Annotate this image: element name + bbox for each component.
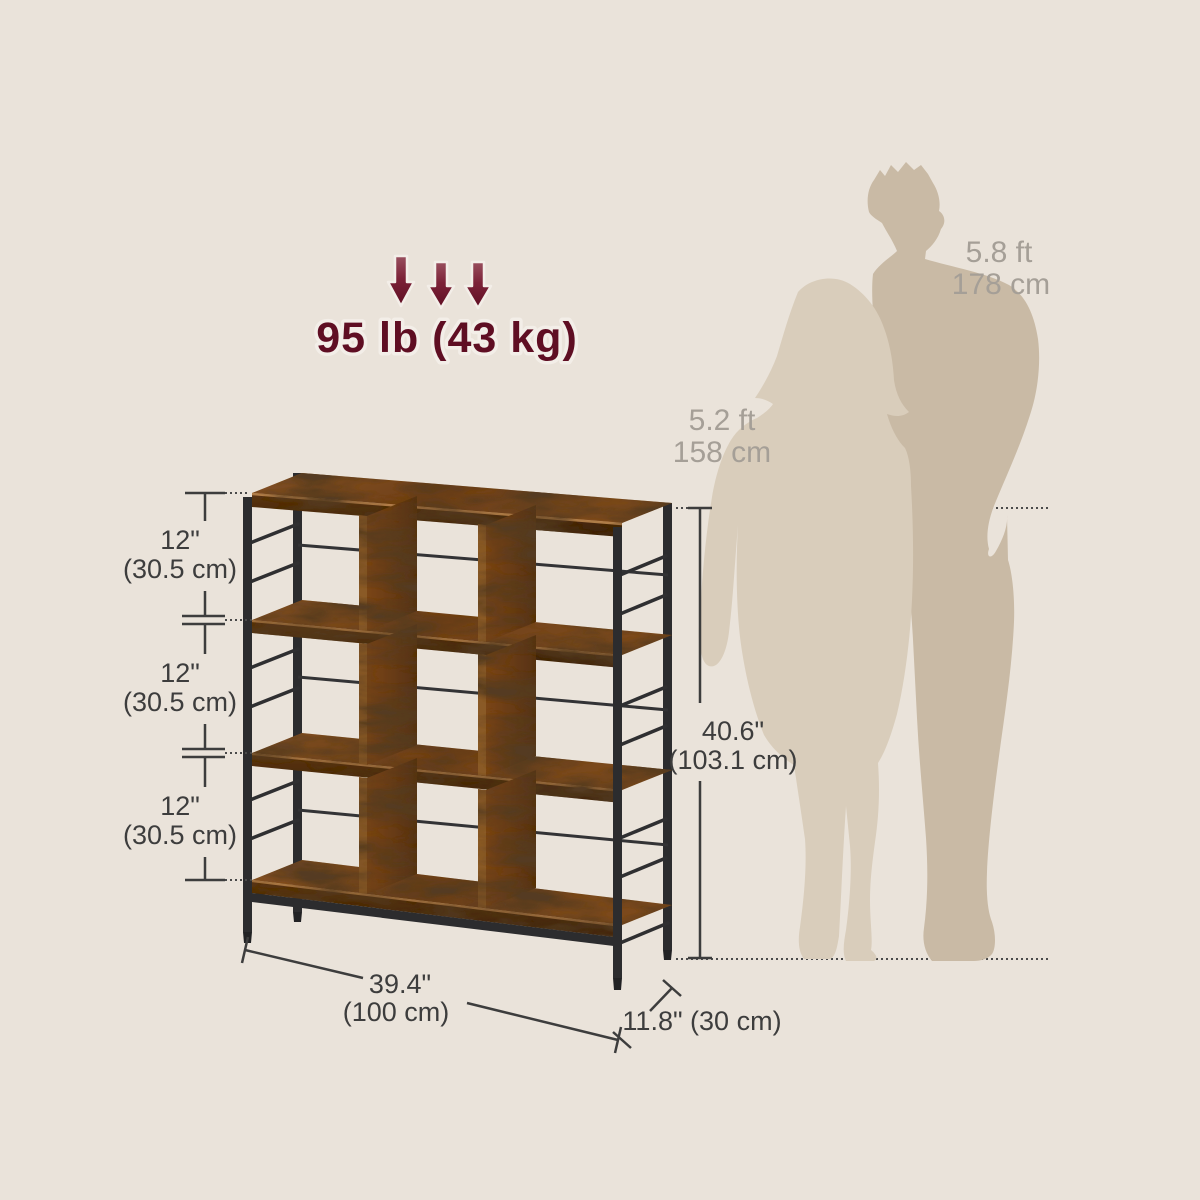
male-height-ft: 5.8 ft: [966, 236, 1033, 269]
shelf-divider-face: [367, 496, 417, 631]
metal-frame-foot: [293, 912, 302, 922]
shelf-divider-edge: [359, 643, 367, 765]
background: [0, 0, 1200, 1200]
width-cm: (100 cm): [343, 997, 450, 1027]
height-cm: (103.1 cm): [668, 745, 797, 775]
shelf-divider-edge: [478, 524, 486, 642]
shelf-divider-face: [367, 758, 417, 894]
shelf-divider-edge: [359, 777, 367, 894]
female-height-ft: 5.2 ft: [689, 404, 756, 437]
product-diagram-canvas: 5.8 ft 178 cm 5.2 ft 158 cm: [0, 0, 1200, 1200]
shelf-divider-edge: [478, 789, 486, 908]
metal-frame-post-front-left: [243, 497, 252, 932]
tier2-inches: 12": [160, 658, 200, 688]
metal-frame-post-front-right: [613, 527, 622, 978]
tier1-cm: (30.5 cm): [123, 554, 237, 584]
diagram-svg: 5.8 ft 178 cm 5.2 ft 158 cm: [0, 0, 1200, 1200]
shelf-divider-face: [486, 635, 536, 776]
male-height-cm: 178 cm: [952, 268, 1050, 301]
width-inches: 39.4": [369, 969, 431, 999]
shelf-divider-edge: [359, 515, 367, 631]
tier3-inches: 12": [160, 791, 200, 821]
depth-label: 11.8" (30 cm): [622, 1006, 781, 1036]
metal-frame-foot: [613, 978, 622, 990]
metal-frame-post-back-left: [293, 473, 302, 912]
shelf-divider-face: [486, 505, 536, 642]
metal-frame-foot: [663, 950, 672, 960]
weight-capacity-label: 95 lb (43 kg): [316, 314, 578, 362]
shelf-divider-face: [367, 624, 417, 765]
tier2-cm: (30.5 cm): [123, 687, 237, 717]
shelf-divider-face: [486, 770, 536, 908]
height-inches: 40.6": [702, 716, 764, 746]
tier3-cm: (30.5 cm): [123, 820, 237, 850]
shelf-divider-edge: [478, 654, 486, 776]
tier1-inches: 12": [160, 525, 200, 555]
female-height-cm: 158 cm: [673, 436, 771, 469]
